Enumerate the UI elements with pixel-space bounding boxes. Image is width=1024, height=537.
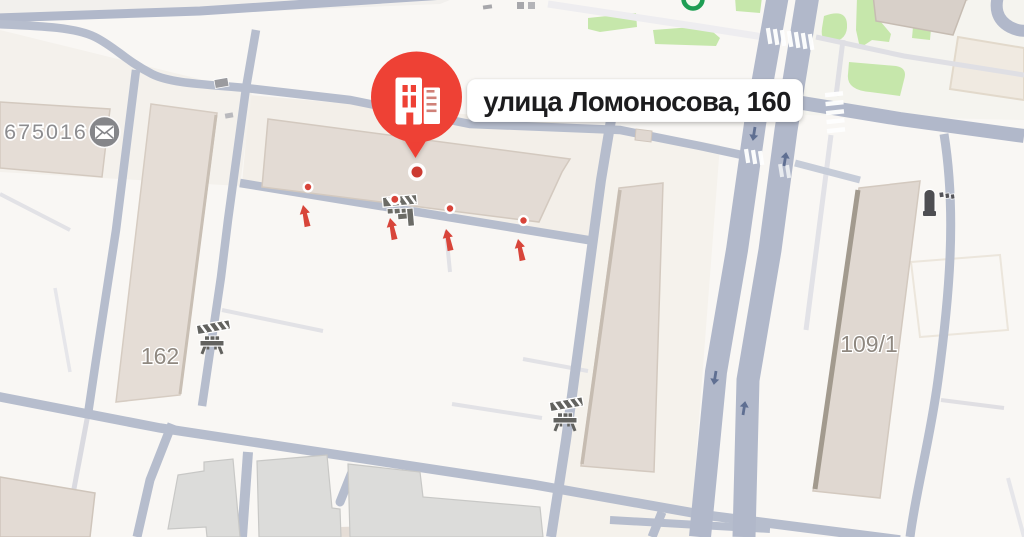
svg-text:улица Ломоносова, 160: улица Ломоносова, 160: [483, 86, 791, 117]
svg-text:162: 162: [141, 343, 179, 369]
svg-text:109/1: 109/1: [840, 331, 898, 357]
svg-text:675016: 675016: [4, 120, 88, 144]
